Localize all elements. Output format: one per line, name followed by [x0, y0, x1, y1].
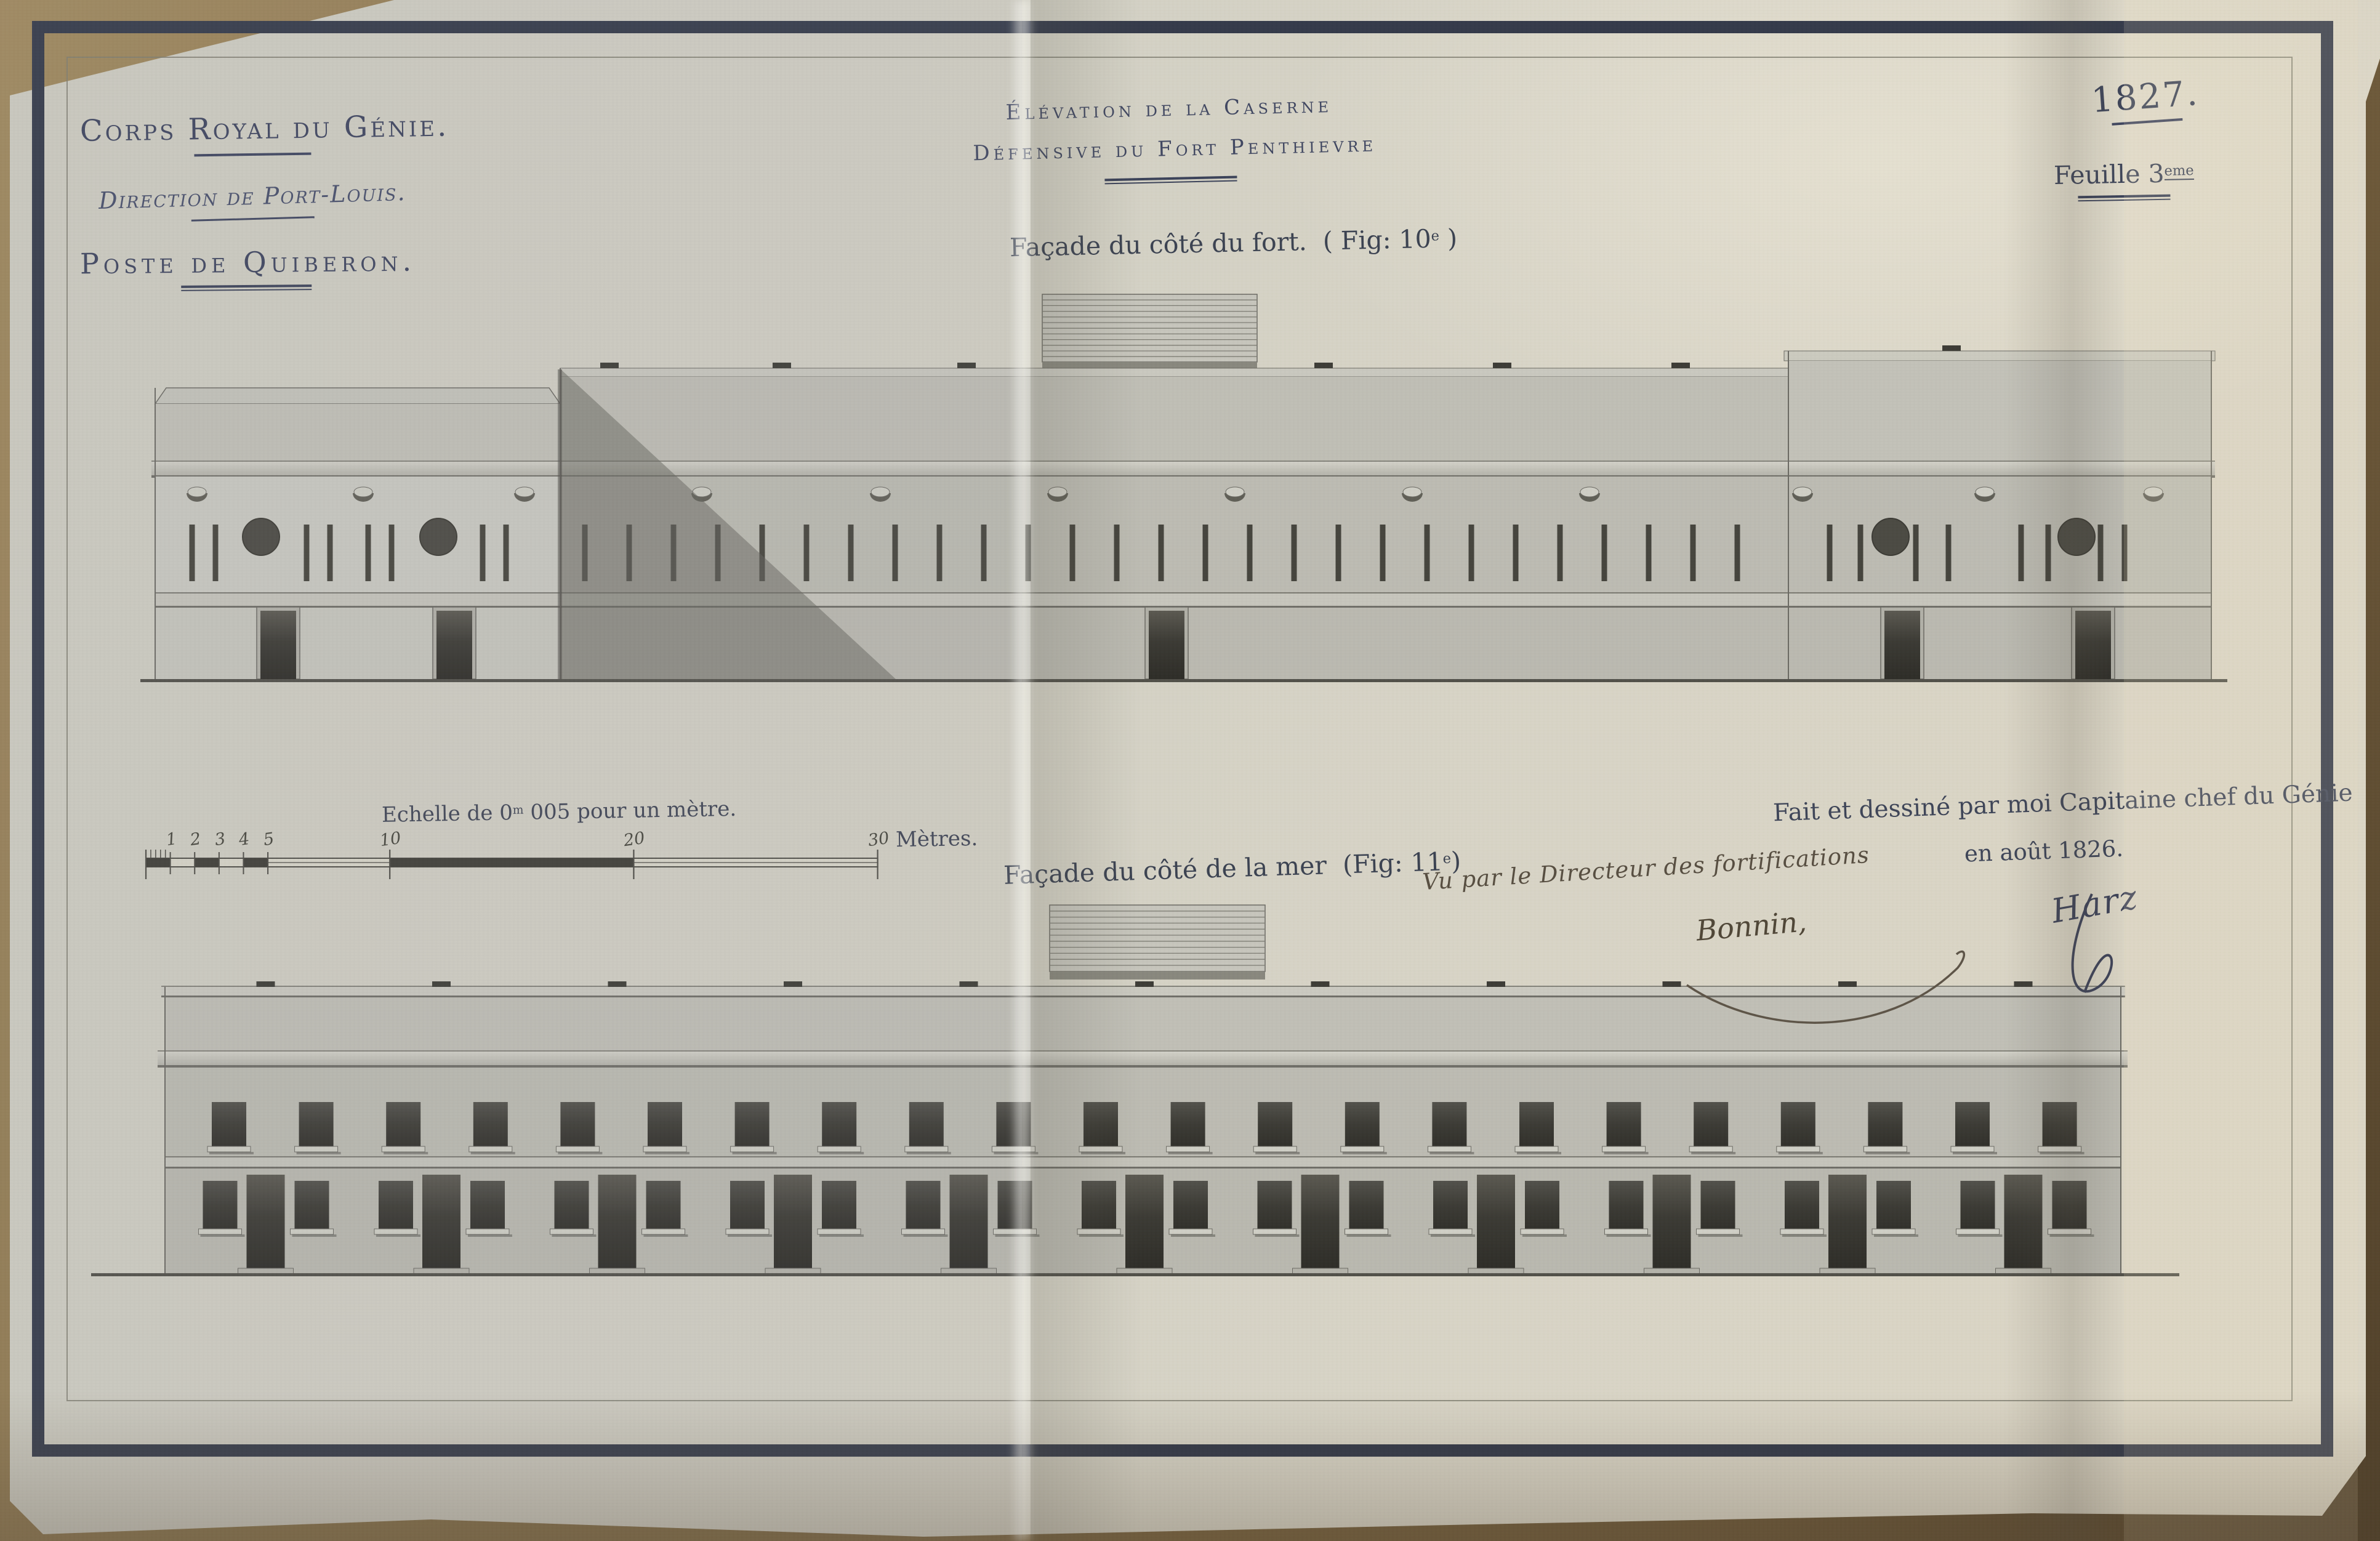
loophole-slit [1469, 525, 1474, 581]
loophole-slit [1114, 525, 1120, 581]
window-sill [905, 1146, 948, 1152]
window [1876, 1181, 1911, 1230]
loophole-slit [937, 525, 943, 581]
door [1653, 1175, 1691, 1269]
chimney [1838, 981, 1857, 987]
fascia [161, 987, 2125, 997]
door [774, 1175, 812, 1269]
loophole-slit [804, 525, 810, 581]
header-poste: Poste de Quiberon. [80, 245, 413, 292]
window [1258, 1102, 1292, 1146]
door [950, 1175, 988, 1269]
window-sill [1077, 1229, 1120, 1234]
window-sill [550, 1229, 593, 1234]
window-sill [994, 1229, 1037, 1234]
door [2075, 611, 2111, 679]
window [1519, 1102, 1554, 1146]
window-sill [199, 1229, 242, 1234]
loophole-slit [981, 525, 987, 581]
oculus [1872, 518, 1909, 555]
loophole-slit [1913, 525, 1919, 581]
ground-line [140, 679, 2227, 682]
window [203, 1181, 238, 1230]
loophole-slit [1026, 525, 1031, 581]
window [560, 1102, 595, 1146]
window [1432, 1102, 1466, 1146]
window-sill [642, 1229, 685, 1234]
window [1083, 1102, 1118, 1146]
window [730, 1181, 765, 1230]
window-sill [382, 1146, 425, 1152]
window [1701, 1181, 1735, 1230]
window-sill [291, 1229, 334, 1234]
cornice [158, 1052, 2128, 1066]
window-sill [1689, 1146, 1732, 1152]
loophole-slit [1558, 525, 1563, 581]
window [295, 1181, 329, 1230]
window [1607, 1102, 1641, 1146]
scale-tick-label: 1 [165, 829, 178, 850]
window [555, 1181, 589, 1230]
loophole-slit [1336, 525, 1341, 581]
window-sill [466, 1229, 509, 1234]
hatched-wall [1050, 905, 1265, 972]
ground-line [91, 1273, 2179, 1276]
window-sill [1956, 1229, 2000, 1234]
loophole-slit [1827, 525, 1833, 581]
door [260, 611, 296, 679]
window [1258, 1181, 1292, 1230]
window-sill [1863, 1146, 1907, 1152]
chimney [1671, 363, 1690, 368]
oculus [420, 518, 457, 555]
chimney [957, 363, 976, 368]
window [1961, 1181, 1995, 1230]
window [906, 1181, 941, 1230]
left-parapet [155, 404, 560, 462]
window [998, 1181, 1032, 1230]
window-sill [726, 1229, 769, 1234]
window-sill [1429, 1229, 1472, 1234]
scale-tick-label: 20 [622, 829, 646, 850]
scale-tick-label: 10 [379, 829, 402, 850]
loophole-slit [1513, 525, 1519, 581]
window [1955, 1102, 1990, 1146]
chimney [2014, 981, 2033, 987]
window-sill [1602, 1146, 1646, 1152]
window [386, 1102, 420, 1146]
loophole-slit [1425, 525, 1430, 581]
window-sill [1167, 1146, 1210, 1152]
window-sill [992, 1146, 1035, 1152]
middle-parapet [560, 377, 1788, 462]
window-sill [556, 1146, 599, 1152]
scale-bar-segment [195, 858, 219, 867]
year: 1827. [2080, 73, 2212, 127]
window-sill [1169, 1229, 1212, 1234]
top-elevation-fort-side [140, 294, 2227, 682]
window [1173, 1181, 1208, 1230]
window-sill [1780, 1229, 1823, 1234]
door [1149, 611, 1184, 679]
window [996, 1102, 1031, 1146]
window [735, 1102, 770, 1146]
loophole-slit [389, 525, 395, 581]
window [648, 1102, 682, 1146]
door [2004, 1175, 2043, 1269]
loophole-slit [1946, 525, 1952, 581]
loophole-slit [893, 525, 898, 581]
window-sill [1428, 1146, 1471, 1152]
chimney [784, 981, 802, 987]
chimney [1487, 981, 1505, 987]
door [1125, 1175, 1164, 1269]
loophole-slit [480, 525, 486, 581]
window [212, 1102, 246, 1146]
door [436, 611, 472, 679]
door [422, 1175, 460, 1269]
window [470, 1181, 505, 1230]
window-sill [1872, 1229, 1915, 1234]
chimney [257, 981, 275, 987]
chimney [600, 363, 619, 368]
chimney [608, 981, 627, 987]
chimney [1135, 981, 1154, 987]
chimney [1663, 981, 1681, 987]
loophole-slit [213, 525, 219, 581]
door [1884, 611, 1920, 679]
scale-tick-label: 30 [867, 829, 890, 850]
right-fascia [1784, 351, 2215, 361]
string-course [165, 1157, 2121, 1167]
chimney [1493, 363, 1511, 368]
window [2052, 1181, 2087, 1230]
chimney [960, 981, 978, 987]
oculus [243, 518, 279, 555]
loophole-slit [1292, 525, 1297, 581]
scale-bar-segment [146, 858, 171, 867]
scale-unit: Mètres. [896, 827, 978, 852]
header-corps: Corps Royal du Génie. [80, 110, 425, 158]
double-underline [181, 284, 312, 291]
loophole-slit [1203, 525, 1208, 581]
cornice [151, 462, 2215, 477]
window-sill [374, 1229, 417, 1234]
window [1785, 1181, 1819, 1230]
loophole-slit [2046, 525, 2051, 581]
window-sill [818, 1146, 861, 1152]
window-sill [1605, 1229, 1648, 1234]
loophole-slit [190, 525, 195, 581]
window-sill [469, 1146, 512, 1152]
loophole-slit [1735, 525, 1740, 581]
loophole-slit [848, 525, 854, 581]
door [1301, 1175, 1340, 1269]
window-sill [1951, 1146, 1994, 1152]
loophole-slit [328, 525, 333, 581]
window-sill [643, 1146, 686, 1152]
chimney [1942, 345, 1961, 351]
chimney [1311, 981, 1330, 987]
window [2043, 1102, 2077, 1146]
window [1525, 1181, 1559, 1230]
window-sill [1079, 1146, 1122, 1152]
loophole-slit [2098, 525, 2104, 581]
window [909, 1102, 944, 1146]
window-sill [1341, 1146, 1384, 1152]
page-title: Élévation de la Caserne Défensive du For… [972, 93, 1368, 188]
window-sill [1521, 1229, 1564, 1234]
window-sill [731, 1146, 774, 1152]
window [1433, 1181, 1468, 1230]
window-sill [1253, 1229, 1297, 1234]
window [1171, 1102, 1205, 1146]
parapet [165, 997, 2121, 1052]
loophole-slit [1691, 525, 1696, 581]
window-sill [1345, 1229, 1388, 1234]
window-sill [207, 1146, 251, 1152]
window [822, 1102, 856, 1146]
window [1609, 1181, 1644, 1230]
middle-fascia [560, 368, 1788, 377]
loophole-slit [1159, 525, 1164, 581]
chimney [432, 981, 451, 987]
right-parapet [1788, 361, 2211, 462]
loophole-slit [1646, 525, 1652, 581]
window [1082, 1181, 1116, 1230]
window-sill [295, 1146, 338, 1152]
window-sill [1777, 1146, 1820, 1152]
upper-wall [165, 1068, 2121, 1157]
window [1868, 1102, 1902, 1146]
door [1477, 1175, 1515, 1269]
loophole-slit [2019, 525, 2024, 581]
window [822, 1181, 856, 1230]
scale-bar-segment [243, 858, 268, 867]
window [473, 1102, 508, 1146]
window-sill [2048, 1229, 2091, 1234]
window-sill [902, 1229, 945, 1234]
bottom-elevation-sea-side [91, 905, 2179, 1276]
scale-bar [146, 850, 878, 879]
window [1781, 1102, 1815, 1146]
door [1828, 1175, 1867, 1269]
scale-bar-segment [390, 858, 633, 867]
string-course [155, 593, 2211, 606]
window [1345, 1102, 1380, 1146]
window [1349, 1181, 1384, 1230]
loophole-slit [1858, 525, 1863, 581]
loophole-slit [1380, 525, 1386, 581]
door [598, 1175, 637, 1269]
window [299, 1102, 334, 1146]
oculus [2058, 518, 2095, 555]
chimney [773, 363, 791, 368]
window-sill [1515, 1146, 1558, 1152]
window-sill [2038, 1146, 2081, 1152]
loophole-slit [1247, 525, 1253, 581]
window-sill [818, 1229, 861, 1234]
loophole-slit [304, 525, 310, 581]
window [1694, 1102, 1728, 1146]
chimney [1314, 363, 1333, 368]
window-sill [1697, 1229, 1740, 1234]
window [379, 1181, 413, 1230]
window-sill [1253, 1146, 1297, 1152]
window [646, 1181, 681, 1230]
loophole-slit [1070, 525, 1075, 581]
loophole-slit [504, 525, 509, 581]
left-block-cap [155, 388, 560, 404]
loophole-slit [1602, 525, 1607, 581]
door [247, 1175, 285, 1269]
loophole-slit [2122, 525, 2128, 581]
sheet-number: Feuille 3eme [2037, 159, 2210, 203]
loophole-slit [366, 525, 371, 581]
